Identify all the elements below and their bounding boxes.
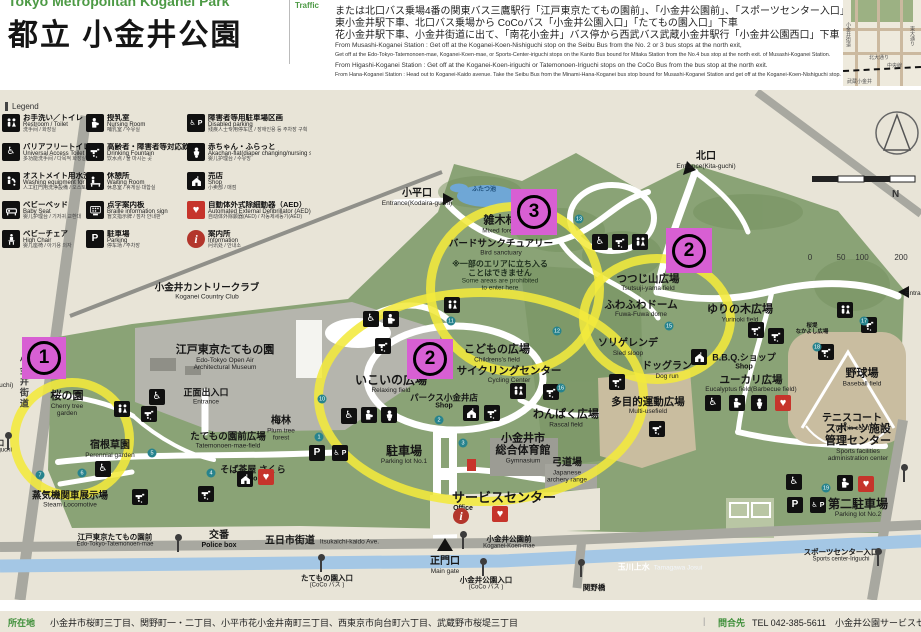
baby-icon	[187, 143, 205, 161]
map-label-soba-chaya: そば茶屋 さくらShop	[220, 465, 286, 482]
map-label-police-box: 交番Police box	[201, 531, 236, 549]
facility-number-4: 4	[207, 469, 216, 478]
fountain-icon	[484, 405, 500, 421]
bus-stop-icon	[482, 564, 484, 576]
parking-icon: P	[309, 445, 325, 461]
map-label-koganei-koen-iriguchi-stop: 小金井公園入口(CoCo バス )	[460, 577, 513, 592]
facility-number-1: 1	[315, 433, 324, 442]
map-label-dog-run: ドッグランDog run	[642, 362, 692, 380]
toilet-icon	[2, 114, 20, 132]
legend-item-shop: 売店Shop小卖部 / 매점	[187, 172, 311, 201]
map-label-eucalyptus-field: ユーカリ広場Eucalyptus field(Barbecue field)	[705, 375, 796, 393]
aed-icon: ♥	[775, 395, 791, 411]
fountain-icon	[132, 489, 148, 505]
toilet-icon	[444, 297, 460, 313]
map-label-steam-locomotive: 蒸気機関車展示場Steam Locomotive	[32, 491, 108, 508]
facility-number-19: 19	[822, 484, 831, 493]
map-label-archery-range: 弓道場Japanesearchery range	[547, 459, 587, 484]
area-badge-3: 3	[511, 189, 557, 235]
map-label-fuwafuwa-dome: ふわふわドームFuwa-Fuwa dome	[604, 300, 677, 318]
disabled-parking-icon: ♿ P	[332, 445, 348, 461]
map-label-cycling-center: サイクリングセンターCycling Center	[457, 366, 562, 384]
map-label-higashi-guchi: 東口Entrance(Higashi-guchi)	[905, 279, 921, 297]
map-label-kita-guchi: 北口Entrance(Kita-guchi)	[676, 152, 735, 170]
inset-label-chuo-line: 中央線	[887, 62, 902, 69]
map-label-main-gate: 正門口Main gate	[430, 557, 460, 575]
bus-stop-icon	[877, 554, 879, 566]
facility-number-15: 15	[665, 322, 674, 331]
map-label-nishi-guchi: 西口Entrance(Nishi-guchi)	[0, 371, 13, 389]
facility-number-16: 16	[557, 384, 566, 393]
legend-item-baby: 赤ちゃん・ふらっとAkachan-flat(diaper changing/nu…	[187, 143, 311, 172]
legend-item-high-chair: ベビーチェアHigh Chair婴儿座椅 / 아기용 의자	[2, 230, 86, 259]
accessible-icon: ♿	[2, 143, 20, 161]
accessible-icon: ♿	[149, 389, 165, 405]
traffic-en-line: From Musashi-Koganei Station : Get off a…	[335, 42, 742, 49]
legend-item-ostomate: オストメイト用水洗器具などWashing equipment for Ostom…	[2, 172, 86, 201]
accessible-icon: ♿	[341, 408, 357, 424]
aed-icon: ♥	[187, 201, 205, 219]
legend-title: Legend	[5, 102, 39, 111]
legend-item-nursing: 授乳室Nursing Room哺乳室 / 수유실	[86, 114, 187, 143]
map-label-parking2: 第二駐車場Parking lot No.2	[828, 498, 888, 518]
accessible-icon: ♿	[705, 395, 721, 411]
footer-divider: |	[703, 616, 705, 626]
page-footer: 所在地 小金井市桜町三丁目、関野町一・二丁目、小平市花小金井南町三丁目、西東京市…	[0, 600, 921, 632]
map-label-childrens-field: こどもの広場Childrens's field	[464, 345, 530, 364]
toilet-icon	[114, 401, 130, 417]
facility-number-2: 2	[435, 416, 444, 425]
nursing-icon	[86, 114, 104, 132]
nursing-icon	[729, 395, 745, 411]
facility-number-12: 12	[553, 327, 562, 336]
map-label-tsutsuji-yama: つつじ山広場Tsutsuji-yama field	[617, 274, 680, 292]
map-label-plum-forest: 梅林Plum treeforest	[267, 417, 295, 442]
map-label-perennial-garden: 宿根草園Perennial garden	[85, 441, 135, 459]
shop-icon	[187, 172, 205, 190]
disabled-parking-icon: ♿ P	[810, 497, 826, 513]
braille-icon	[86, 201, 104, 219]
scale-tick: 200	[894, 253, 907, 262]
disabled-parking-icon: ♿ P	[187, 114, 205, 132]
legend-item-baby-bed: ベビーベッドBaby Seat婴儿护理台 / 기저귀 교환대	[2, 201, 86, 230]
legend-item-disabled-parking: ♿ P障害者等用駐車場区画Disabled parking残疾人士专用停车区 /…	[187, 114, 311, 143]
high-chair-icon	[2, 230, 20, 248]
map-label-yurinoki-field: ゆりの木広場Yurinoki field	[707, 305, 773, 324]
area-badge-2: 2	[407, 339, 453, 379]
fountain-icon	[612, 234, 628, 250]
scale-tick: 100	[855, 253, 868, 262]
legend-item-braille: 点字案内板Braille information sign盲文指示牌 / 점자 …	[86, 201, 187, 230]
map-label-country-club: 小金井カントリークラブKoganei Country Club	[155, 283, 260, 300]
map-label-rascal-field: わんぱく広場Rascal field	[533, 410, 599, 429]
inset-label-higashi-odori: 東大通り	[909, 26, 916, 46]
koganei-park-map-page: Tokyo Metropolitan Koganei Park 都立 小金井公園…	[0, 0, 921, 632]
facility-number-6: 6	[78, 469, 87, 478]
map-label-sekino-bashi: 関野橋	[583, 584, 606, 592]
fountain-icon	[649, 421, 665, 437]
legend-item-aed: ♥自動体外式除細動器（AED）Automated External Defibr…	[187, 201, 311, 230]
compass-north-label: N	[892, 189, 899, 200]
accessible-icon: ♿	[363, 311, 379, 327]
bus-stop-icon	[177, 540, 179, 552]
map-label-multi-use-field: 多目的運動広場Multi-usefield	[611, 397, 685, 415]
nursing-icon	[383, 311, 399, 327]
bus-stop-icon	[462, 537, 464, 549]
scale-tick: 50	[837, 253, 846, 262]
scale-tick: 0	[808, 253, 812, 262]
address-label: 所在地	[8, 616, 35, 629]
fountain-icon	[609, 374, 625, 390]
baby-icon	[751, 395, 767, 411]
contact-text: TEL 042-385-5611 小金井公園サービスセンター	[752, 616, 921, 629]
location-inset-map: 北大通り 中央線 武蔵小金井 小金井街道 東大通り	[843, 0, 921, 86]
map-label-sled-slope: ソリゲレンデSled sloop	[598, 339, 658, 357]
pretitle: Tokyo Metropolitan Koganei Park	[8, 0, 229, 9]
facility-number-5: 5	[148, 449, 157, 458]
traffic-en-line: From Higashi-Koganei Station : Get off a…	[335, 62, 768, 69]
map-label-sports-center-iriguchi-stop: スポーツセンター入口Sports center-Iriguchi	[804, 549, 879, 564]
area-badge-1: 1	[22, 337, 66, 379]
facility-number-18: 18	[813, 343, 822, 352]
legend-item-fountain: 高齢者・障害者等対応飲用水栓Drinking Fountain饮水点 / 물 마…	[86, 143, 187, 172]
map-label-sports-admin: スポーツ施設管理センターSports facilitiesadministrat…	[825, 424, 891, 462]
toilet-icon	[632, 234, 648, 250]
toilet-icon	[837, 302, 853, 318]
map-label-futatsu-ike: ふたつ池	[472, 187, 496, 193]
map-label-edo-museum: 江戸東京たてもの園Edo-Tokyo Open AirArchitectural…	[176, 345, 274, 371]
page-header: Tokyo Metropolitan Koganei Park 都立 小金井公園…	[0, 0, 921, 90]
facility-number-13: 13	[575, 215, 584, 224]
fountain-icon	[375, 338, 391, 354]
bus-stop-icon	[903, 470, 905, 482]
legend-item-accessible: ♿バリアフリートイレUniversal Access Toilet多功能洗手间 …	[2, 143, 86, 172]
facility-number-11: 11	[447, 317, 456, 326]
info-icon: i	[453, 508, 469, 524]
map-label-nishiguchi-stop: 小金井公園西口Koganei-Koen-Nishiguchi	[0, 440, 12, 455]
address-text: 小金井市桜町三丁目、関野町一・二丁目、小平市花小金井南町三丁目、西東京市向台町六…	[50, 616, 518, 629]
nursing-icon	[837, 475, 853, 491]
map-label-itsukaichi-kaido: 五日市街道Itsukaichi-kaido Ave.	[265, 537, 379, 548]
parking-icon: P	[787, 497, 803, 513]
inset-park-area	[851, 0, 913, 22]
bus-stop-icon	[580, 565, 582, 577]
area-badge-2: 2	[666, 228, 712, 273]
legend-item-parking: P駐車場Parking停车场 / 주차장	[86, 230, 187, 259]
accessible-icon: ♿	[95, 461, 111, 477]
traffic-label: Traffic	[295, 1, 319, 10]
legend: お手洗い／トイレRestroom / Toilet洗手间 / 화장실♿バリアフリ…	[2, 114, 311, 259]
inset-label-koganei-kaido: 小金井街道	[845, 22, 852, 47]
info-icon: i	[187, 230, 205, 248]
map-label-service-center: サービスセンター	[452, 491, 556, 505]
facility-number-10: 10	[318, 395, 327, 404]
baby-icon	[381, 407, 397, 423]
map-label-tamagawa-josui: 玉川上水Tamagawa Josui	[618, 564, 702, 573]
traffic-en-line: From Hana-Koganei Station : Head out to …	[335, 72, 841, 78]
legend-item-info: i案内所Information问讯处 / 안내소	[187, 230, 311, 259]
inset-label-musashi-koganei: 武蔵小金井	[847, 78, 872, 85]
shop-icon	[237, 471, 253, 487]
facility-number-7: 7	[36, 471, 45, 480]
map-label-koganei-koen-mae-stop: 小金井公園前Koganei-Koen-mae	[483, 536, 535, 551]
aed-icon: ♥	[258, 469, 274, 485]
legend-item-waiting: 休憩所Waiting Room休息室 / 휴게실·대합실	[86, 172, 187, 201]
baby-bed-icon	[2, 201, 20, 219]
bus-stop-icon	[7, 438, 9, 450]
facility-number-17: 17	[860, 317, 869, 326]
map-label-tatemonoen-iriguchi-stop: たてもの園入口(CoCo バス )	[301, 575, 353, 590]
map-label-bird-sanctuary: バードサンクチュアリーBird sanctuary	[449, 239, 553, 256]
map-label-main-entrance: 正面出入口Entrance	[183, 389, 228, 406]
fountain-icon	[198, 486, 214, 502]
map-label-parking1: 駐車場Parking lot No.1	[381, 445, 427, 465]
map-label-kodaira-guchi: 小平口Entrance(Kodaira-guchi)	[382, 189, 452, 207]
fountain-icon	[768, 328, 784, 344]
map-label-notice: ※一部のエリアに立ち入ることはできませんSome areas are prohi…	[452, 260, 548, 291]
inset-label-kitaodori: 北大通り	[869, 54, 889, 61]
header-divider	[289, 0, 290, 64]
ostomate-icon	[2, 172, 20, 190]
map-label-nakayoshi-field: 桜堤なかよし広場	[796, 324, 829, 336]
contact-label: 問合先	[718, 616, 745, 629]
legend-item-toilet: お手洗い／トイレRestroom / Toilet洗手间 / 화장실	[2, 114, 86, 143]
scale-bar	[812, 176, 915, 182]
map-label-gymnasium: 小金井市総合体育館Gymnasium	[496, 434, 551, 465]
map-label-cherry-garden: 桜の園Cherry treegarden	[51, 391, 84, 417]
waiting-icon	[86, 172, 104, 190]
fountain-icon	[141, 406, 157, 422]
shop-icon	[463, 405, 479, 421]
map-label-baseball-field: 野球場Baseball field	[843, 369, 882, 388]
fountain-icon	[86, 143, 104, 161]
map-label-bbq-shop: B.B.Q.ショップShop	[712, 353, 776, 370]
map-label-tatemonoen-mae-stop: 江戸東京たてもの園前Edo-Tokyo-Tatemonoen-mae	[76, 534, 153, 549]
shop-icon	[691, 349, 707, 365]
nursing-icon	[361, 407, 377, 423]
aed-icon: ♥	[858, 476, 874, 492]
fountain-icon	[748, 322, 764, 338]
aed-icon: ♥	[492, 506, 508, 522]
traffic-jp-line: 花小金井駅下車、小金井街道に出て、「南花小金井」バス停から西武バス武蔵小金井駅行…	[335, 26, 840, 41]
page-title: 都立 小金井公園	[8, 10, 242, 54]
traffic-en-line: Get off at the Edo-Tokyo-Tatemonoen-mae,…	[335, 52, 830, 58]
toilet-icon	[510, 383, 526, 399]
facility-number-3: 3	[459, 439, 468, 448]
bus-stop-icon	[320, 560, 322, 572]
park-map: Legend お手洗い／トイレRestroom / Toilet洗手间 / 화장…	[0, 90, 921, 600]
accessible-icon: ♿	[592, 234, 608, 250]
accessible-icon: ♿	[786, 474, 802, 490]
parking-icon: P	[86, 230, 104, 248]
map-label-tatemonoen-mae-field: たてもの園前広場Tatemonoen-mae-field	[190, 432, 266, 449]
